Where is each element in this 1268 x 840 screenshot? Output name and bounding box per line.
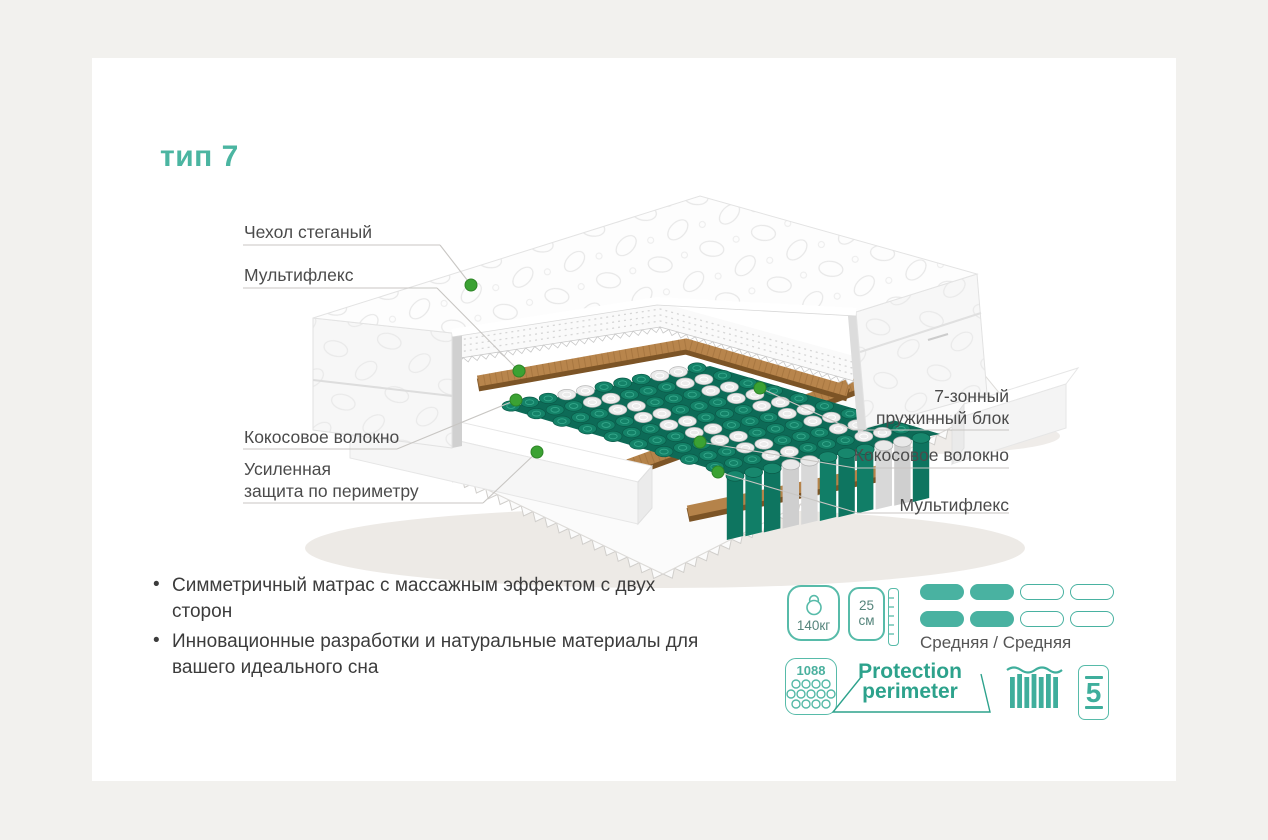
kettlebell-icon <box>803 594 825 616</box>
zones-bars-icon <box>1005 662 1065 712</box>
warranty-years: 5 <box>1086 681 1102 705</box>
height-value: 25 <box>859 599 874 614</box>
firmness-pill <box>920 584 964 600</box>
max-weight-value: 140кг <box>797 618 830 633</box>
warranty-badge: 5 <box>1078 665 1109 720</box>
page-title: тип 7 <box>160 140 239 174</box>
label-multiflex-right: Мультифлекс <box>800 494 1009 516</box>
label-spring-block: 7-зонныйпружинный блок <box>800 385 1009 429</box>
label-coconut-left: Кокосовое волокно <box>244 426 399 448</box>
height-badge: 25 см <box>848 587 885 641</box>
firmness-pill <box>920 611 964 627</box>
firmness-pill <box>1070 584 1114 600</box>
protection-text-2: perimeter <box>828 682 992 702</box>
firmness-pill <box>970 611 1014 627</box>
page: тип 7 Чехол стеганый Мультифлекс Кокосов… <box>0 0 1268 840</box>
label-coconut-right: Кокосовое волокно <box>800 444 1009 466</box>
ruler-icon <box>888 588 899 646</box>
feature-list: Симметричный матрас с массажным эффектом… <box>150 573 710 686</box>
feature-item: Симметричный матрас с массажным эффектом… <box>150 573 710 624</box>
firmness-pill <box>1070 611 1114 627</box>
spring-count-value: 1088 <box>797 663 826 678</box>
firmness-pill <box>1020 584 1064 600</box>
firmness-label: Средняя / Средняя <box>920 633 1071 653</box>
label-quilted-cover: Чехол стеганый <box>244 221 372 243</box>
max-weight-badge: 140кг <box>787 585 840 641</box>
feature-item: Инновационные разработки и натуральные м… <box>150 629 710 680</box>
firmness-pill <box>1020 611 1064 627</box>
height-unit: см <box>858 614 874 629</box>
protection-perimeter-badge: Protection perimeter <box>828 656 992 718</box>
firmness-pill <box>970 584 1014 600</box>
protection-text-1: Protection <box>828 662 992 682</box>
label-multiflex-left: Мультифлекс <box>244 264 353 286</box>
label-perimeter-protection: Усиленнаязащита по периметру <box>244 458 419 502</box>
